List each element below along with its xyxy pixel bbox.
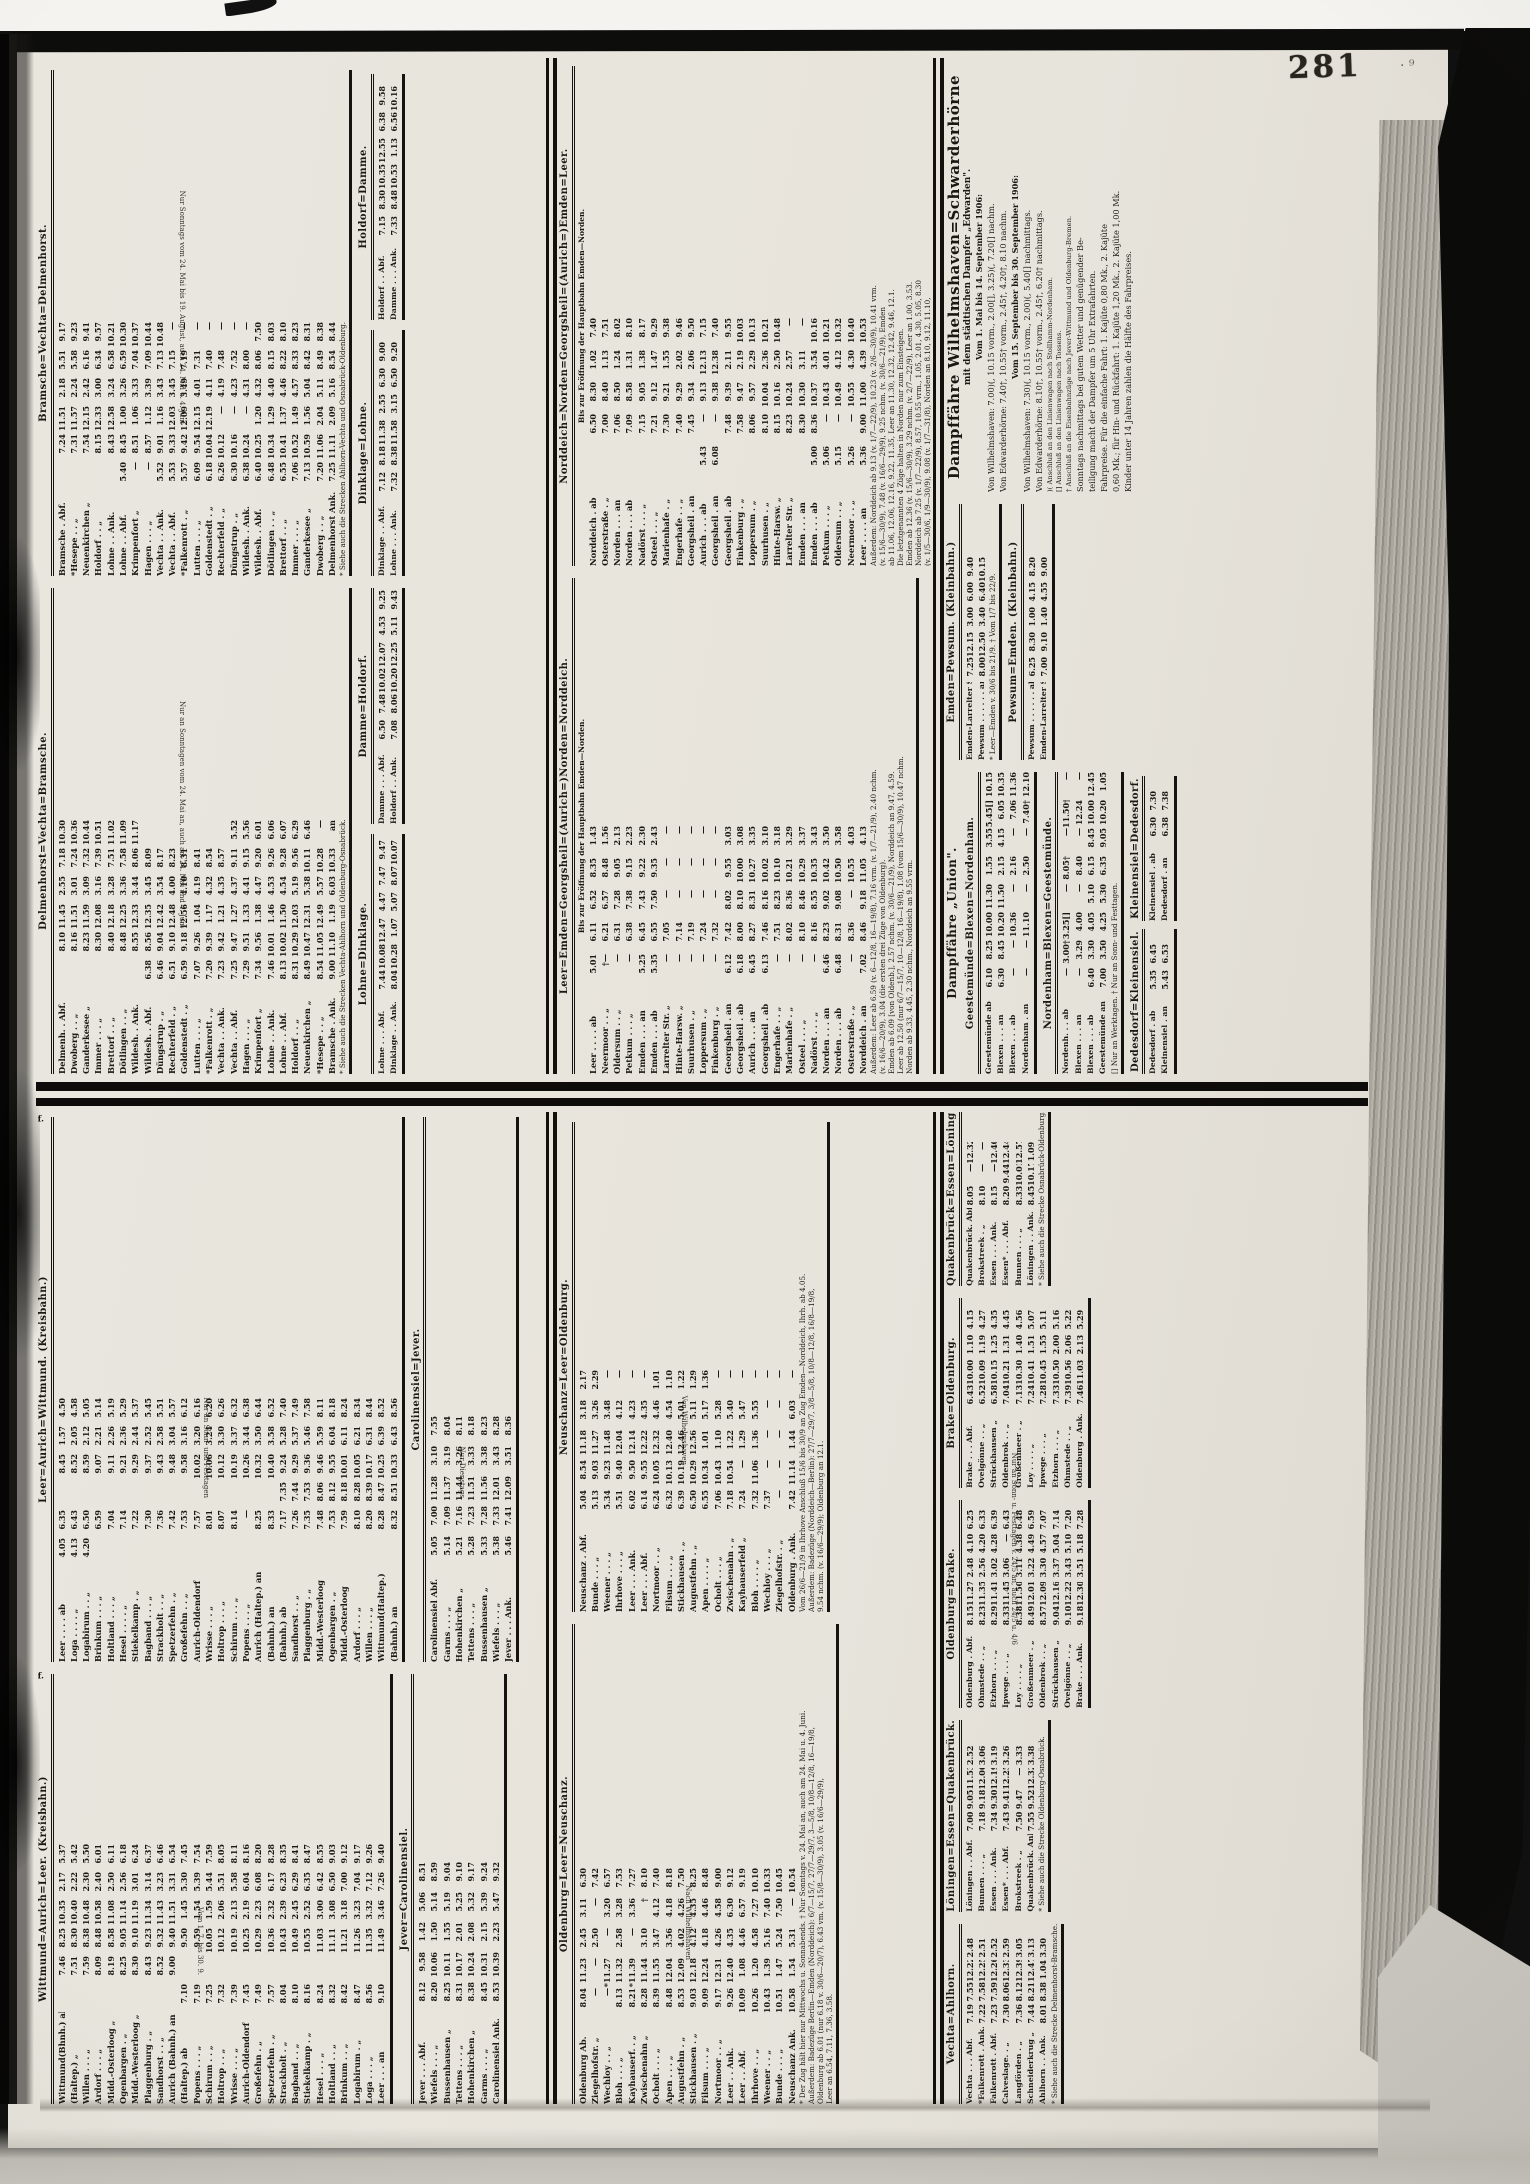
time-cell: 6.05 — [995, 800, 1007, 828]
time-cell: 10.01 — [1013, 1164, 1025, 1186]
table-row: Marienhafe . „—8.028.3610.213.29 — [783, 578, 795, 1074]
station-name: Ziegelhofstr. „ — [589, 2018, 601, 2104]
table-row: Wiefels . . . „8.2010.061.505.148.59 — [428, 1674, 440, 2104]
time-cell — [215, 1482, 227, 1510]
station-name: Aurich-Oldendorf — [240, 2012, 252, 2104]
time-cell: 10.43 — [761, 1988, 773, 2018]
table-rotated-note: Von Wilhelmshaven — [680, 1396, 688, 1465]
time-cell — [338, 1538, 350, 1566]
time-cell: — — [761, 1400, 773, 1430]
time-cell: — — [1020, 940, 1032, 968]
time-cell: 3.02 — [988, 1558, 1000, 1582]
timetable-kleinensiel-dedesdorf: Kleinensiel=Dedesdorf.Kleinensiel . ab6.… — [1130, 776, 1177, 921]
time-cell: 3.04 — [166, 1426, 178, 1454]
time-cell: 8.48 — [663, 1988, 675, 2018]
time-cell: 7.26 — [375, 1872, 387, 1900]
time-cell: 6.45 — [636, 922, 648, 954]
table-body: Delmenh. . Abf.8.1011.452.557.1810.30Dwo… — [56, 588, 339, 1074]
time-cell: 8.03 — [265, 322, 277, 350]
time-cell: 10.30 — [117, 322, 129, 350]
station-name: Loppersum . „ — [746, 478, 758, 566]
time-cell: 9.10 — [375, 1984, 387, 2012]
time-cell: 11.32 — [613, 1958, 625, 1988]
time-cell: 10.36 — [1007, 912, 1019, 940]
timetable-norddeich-emden-leer: Norddeich=Norden=Georgsheil=(Aurich=)Emd… — [559, 66, 931, 566]
time-cell: 8.38 — [314, 322, 326, 350]
station-name: Geestemünde an — [1097, 996, 1109, 1074]
time-cell: 8.56 — [388, 1398, 400, 1426]
time-cell: 9.50 — [626, 1460, 638, 1490]
table-footnote: * Siehe auch die Strecken Vechta-Ahlhorn… — [338, 588, 347, 1074]
time-cell: 3.29 — [783, 826, 795, 858]
station-name: Aurich (Bahnh.) an — [166, 2012, 178, 2104]
table-row: Aurich . . . ab5.43—9.1312.137.15 — [697, 66, 709, 566]
station-name: Osterstraße . „ — [845, 986, 857, 1074]
time-cell — [326, 1956, 338, 1984]
time-cell: 12.15 — [191, 406, 203, 434]
table-row: Norden . . . an6.468.239.0210.423.50 — [820, 578, 832, 1074]
time-cell: — — [736, 1370, 748, 1400]
time-cell: 11.18 — [577, 1430, 589, 1460]
table-rotated-note: Nur an Sonn- und Festtagen — [202, 1398, 210, 1499]
time-cell: 10.00 — [1085, 800, 1097, 828]
time-cell: 8.10 — [56, 932, 68, 960]
station-name: Strückhausen „ — [988, 1410, 1000, 1488]
time-cell: 4.20 — [80, 1538, 92, 1566]
time-cell: 5.40 — [117, 462, 129, 490]
time-cell: 1.55 — [660, 350, 672, 382]
time-cell: 10.43 — [820, 382, 832, 414]
station-name: Marienhafe . „ — [783, 986, 795, 1074]
time-cell: 3.38 — [1025, 1746, 1037, 1768]
time-cell: 3.10 — [428, 1446, 440, 1476]
table-row: Popens . . . „7.199.591.545.397.54 — [191, 1674, 203, 2104]
table-row: Schirum . . „7.2510.051.595.447.59 — [203, 1674, 215, 2104]
time-cell: 4.35 — [215, 876, 227, 904]
station-name: Hagen . . . „ — [142, 490, 154, 576]
time-cell: 8.10 — [638, 1868, 650, 1898]
station-name: Immer . . . „ — [92, 988, 104, 1074]
table-side-note: In Popens halten die Züge nur nach Bedar… — [38, 1672, 44, 1682]
time-cell: 12.09 — [675, 1958, 687, 1988]
time-cell — [228, 1482, 240, 1510]
table-row: Neuenkirchen „8.4910.4712.315.3810.116.4… — [301, 588, 313, 1074]
time-cell: 11.49 — [375, 1928, 387, 1956]
time-cell: 8.23 — [80, 932, 92, 960]
station-name: Schneiderkrug „ — [1025, 2026, 1037, 2104]
time-cell: 3.47 — [650, 1928, 662, 1958]
time-cell: 8.17 — [636, 318, 648, 350]
table-row: Lohne . . Ank.8.4312.583.246.5810.21 — [105, 70, 117, 576]
time-cell — [363, 1538, 375, 1566]
time-cell: 9.40 — [375, 1844, 387, 1872]
time-cell: 6.26 — [215, 1398, 227, 1426]
time-cell: 1.40 — [1013, 1335, 1025, 1360]
station-name: Midd.-Osterloog „ — [105, 2012, 117, 2104]
time-cell: 4.10 — [964, 1534, 976, 1558]
time-cell: 10.42 — [820, 858, 832, 890]
time-cell: 7.06 — [289, 462, 301, 490]
time-cell: 4.05 — [56, 1538, 68, 1566]
time-cell: 2.48 — [964, 1938, 976, 1960]
time-cell: 5.52 — [228, 820, 240, 848]
time-cell: 5.35 — [1147, 970, 1159, 996]
time-cell: 5.01 — [587, 954, 599, 986]
time-cell: 8.24 — [314, 1984, 326, 2012]
time-cell: 8.51 — [388, 1482, 400, 1510]
time-cell: 9.36 — [301, 1454, 313, 1482]
time-cell: 12.48 — [166, 904, 178, 932]
time-cell: — — [228, 406, 240, 434]
time-cell: 5.04 — [577, 1490, 589, 1520]
time-cell: 2.56 — [976, 1558, 988, 1582]
time-cell: 5.35 — [648, 954, 660, 986]
time-cell: 8.18 — [465, 1416, 477, 1446]
time-cell: 9.46 — [673, 318, 685, 350]
time-cell: 3.28 — [105, 876, 117, 904]
table-row: Nordenham . an——11.10—2.50—7.40†12.10 — [1020, 772, 1032, 1074]
time-cell: 1.55 — [441, 1922, 453, 1952]
time-cell: 8.04 — [388, 970, 400, 996]
time-cell: 10.49 — [832, 382, 844, 414]
time-cell: 7.39 — [228, 1984, 240, 2012]
time-cell: 4.19 — [191, 876, 203, 904]
time-cell: 9.40 — [613, 1460, 625, 1490]
time-cell: 2.23 — [490, 1922, 502, 1952]
table-body: Leer . . . . ab4.056.358.451.574.50Loga … — [56, 1117, 400, 1662]
time-cell: — — [626, 1370, 638, 1400]
timetable-oldenburg-leer-neuschanz: Oldenburg=Leer=Neuschanz.Oldenburg Ab.8.… — [559, 1624, 839, 2104]
time-cell: 8.23 — [166, 848, 178, 876]
time-cell: 11.14 — [117, 1900, 129, 1928]
table-row: Strückhausen „6.5810.151.254.35 — [988, 1298, 1000, 1488]
time-cell: 1.21 — [215, 904, 227, 932]
time-cell: 8.28 — [351, 1482, 363, 1510]
time-cell: 8.52 — [154, 1956, 166, 1984]
time-cell — [375, 1956, 387, 1984]
time-cell: 8.54 — [577, 1460, 589, 1490]
station-name: Norden . . . ab — [623, 478, 635, 566]
time-cell: 5.37 — [129, 1398, 141, 1426]
table-row: Brokstreek . „8.10—— — [976, 1112, 988, 1286]
time-cell: 3.00 — [964, 607, 976, 632]
station-name: Oldersum . . „ — [832, 478, 844, 566]
table-row: Holtrop . . „7.3210.122.065.518.05 — [215, 1674, 227, 2104]
station-name: *Falkenrott . „ — [178, 490, 190, 576]
time-cell: 6.52 — [976, 1385, 988, 1410]
steamer-legend: [] Anschluß an den Linienwagen nach Toss… — [1055, 62, 1065, 492]
time-cell: 1.36 — [749, 1430, 761, 1460]
time-cell: 11.36 — [1007, 772, 1019, 800]
time-cell: 11.26 — [351, 1928, 363, 1956]
station-name: Oldenbrok . . „ — [1037, 1630, 1049, 1708]
time-cell: 3.35 — [746, 826, 758, 858]
time-cell: 7.09 — [142, 350, 154, 378]
time-cell: 10.48 — [771, 318, 783, 350]
time-cell: 6.18 — [734, 954, 746, 986]
station-name: Suurhusen . „ — [759, 478, 771, 566]
time-cell: 7.28 — [478, 1506, 490, 1536]
time-cell: 8.51 — [416, 1862, 428, 1892]
time-cell: 3.11 — [796, 350, 808, 382]
time-cell: 10.32 — [832, 318, 844, 350]
time-cell: 4.58 — [749, 1928, 761, 1958]
time-cell: 5.37 — [289, 1426, 301, 1454]
time-cell: 5.22 — [1062, 1310, 1074, 1335]
station-name: Brinkum . . „ — [338, 2012, 350, 2104]
time-cell: 7.32 — [709, 922, 721, 954]
timetable-oldenburg-brake: Oldenburg=Brake.Oldenburg . Abf.8.1511.2… — [946, 1500, 1091, 1708]
time-cell: 3.19 — [988, 1746, 1000, 1768]
table-row: Immer . . . „8.3012.083.167.3910.51 — [92, 588, 104, 1074]
time-cell — [68, 1984, 80, 2012]
station-name: Wrisse . . . „ — [203, 1566, 215, 1662]
time-cell: 7.12 — [376, 472, 388, 498]
station-name: Löningen . . Abf. — [964, 1834, 976, 1912]
table-row: Leer . . . . an5.369.0011.004.3910.53 — [857, 66, 869, 566]
time-cell: 10.35 — [808, 858, 820, 890]
time-cell: 1.02 — [587, 350, 599, 382]
time-cell — [636, 446, 648, 478]
time-cell: — — [685, 826, 697, 858]
time-cell: 5.30 — [178, 1872, 190, 1900]
time-cell: 12.15 — [964, 632, 976, 657]
time-cell — [142, 1984, 154, 2012]
table-title: Lohne=Dinklage. — [358, 834, 374, 1074]
time-cell: 5.51 — [613, 1490, 625, 1520]
time-cell: 9.39 — [722, 382, 734, 414]
time-cell: 11.11 — [326, 1928, 338, 1956]
time-cell: 6.30 — [724, 1898, 736, 1928]
time-cell: 8.33 — [289, 350, 301, 378]
time-cell: 1.12 — [142, 406, 154, 434]
time-cell: 12.35 — [142, 904, 154, 932]
time-cell: 4.37 — [228, 876, 240, 904]
time-cell: 9.43 — [388, 590, 400, 616]
time-cell: 6.39 — [375, 1426, 387, 1454]
time-cell: 3.05 — [1013, 1938, 1025, 1960]
station-name: Delmenh. . Abf. — [56, 988, 68, 1074]
time-cell: 1.59 — [203, 1900, 215, 1928]
time-cell — [783, 446, 795, 478]
time-cell: 10.17 — [1025, 1164, 1037, 1186]
time-cell: 1.01 — [650, 1370, 662, 1400]
station-name: Spetzerfehn . „ — [166, 1566, 178, 1662]
band-neuschanz: Oldenburg=Leer=Neuschanz.Oldenburg Ab.8.… — [559, 1112, 931, 2104]
time-cell: 8.45 — [117, 434, 129, 462]
table-row: Emden-Larrelter Straße ab7.2512.153.006.… — [964, 504, 976, 760]
time-cell: 8.58 — [105, 1928, 117, 1956]
time-cell: 5.06 — [416, 1892, 428, 1922]
time-cell: 7.28 — [1074, 1510, 1086, 1534]
time-cell: 5.57 — [166, 1398, 178, 1426]
time-cell — [105, 1984, 117, 2012]
time-cell: 12.19 — [203, 406, 215, 434]
time-cell: 8.54 — [203, 848, 215, 876]
time-cell: 12.49 — [314, 904, 326, 932]
time-cell: 7.46 — [759, 922, 771, 954]
time-cell: 12.32 — [964, 1142, 976, 1164]
station-name: Georgsheil . an — [722, 986, 734, 1074]
time-cell: 7.07 — [191, 960, 203, 988]
station-name: Lohne . . Abf. — [117, 490, 129, 576]
station-name: Loga . . . „ — [363, 2012, 375, 2104]
time-cell: 5.28 — [277, 1426, 289, 1454]
time-cell: 11.17 — [129, 820, 141, 848]
time-cell: 5.51 — [154, 1398, 166, 1426]
time-cell: 7.52 — [228, 350, 240, 378]
steamer-heading: Dampffähre Wilhelmshaven=Schwarderhörne — [946, 62, 963, 492]
table-row: Larrelter Str. „8.2310.242.57— — [783, 66, 795, 566]
time-cell: 12.31 — [301, 904, 313, 932]
time-cell: 7.04 — [351, 1872, 363, 1900]
time-cell: 7.58 — [117, 848, 129, 876]
section-rule — [546, 58, 557, 1074]
time-cell — [56, 960, 68, 988]
table-row: Goldenstedt . „6.1810.0412.194.117.40— — [203, 70, 215, 576]
time-cell: 8.33 — [1013, 1186, 1025, 1208]
table-row: Bussenhausen „8.2510.111.555.199.04 — [441, 1674, 453, 2104]
table-footnote: ab 11.06, 12.06, 12.16, 9.22, 11.35, Lee… — [887, 66, 896, 566]
time-cell: 6.04 — [326, 1426, 338, 1454]
time-cell: 2.39 — [277, 1900, 289, 1928]
time-cell: 12.33 — [92, 406, 104, 434]
table-row: Bunde . . . „5.139.0311.273.262.29 — [589, 1122, 601, 1612]
time-cell: 1.42 — [416, 1922, 428, 1952]
station-name: Rechterfeld . „ — [215, 490, 227, 576]
station-name: Emden . . . ab — [648, 986, 660, 1074]
table-row: Marienhafe . „7.309.211.559.38 — [660, 66, 672, 566]
time-cell: 7.19 — [964, 2004, 976, 2026]
time-cell: 8.59 — [428, 1862, 440, 1892]
time-cell: — — [1060, 884, 1072, 912]
table-row: Lutten . . . „7.079.261.044.198.41 — [191, 588, 203, 1074]
time-cell: 8.02 — [783, 922, 795, 954]
time-cell: 3.01 — [68, 876, 80, 904]
time-cell: 4.50 — [56, 1398, 68, 1426]
time-cell: 3.00† — [1060, 940, 1072, 968]
time-cell: 10.31 — [478, 1952, 490, 1982]
station-name: Georgsheil . ab — [734, 986, 746, 1074]
time-cell: 5.44 — [203, 1872, 215, 1900]
time-cell: 8.39 — [650, 1988, 662, 2018]
time-cell: 8.25 — [441, 1982, 453, 2012]
time-cell — [80, 1482, 92, 1510]
time-cell — [277, 1956, 289, 1984]
time-cell: 5.16 — [1050, 1310, 1062, 1335]
time-cell: 11.43 — [154, 1900, 166, 1928]
table-row: Ogenbargen . „7.538.129.556.048.18 — [326, 1117, 338, 1662]
time-cell: 7.20 — [203, 960, 215, 988]
time-cell: 3.43 — [1062, 1558, 1074, 1582]
time-cell: 8.04 — [577, 1988, 589, 2018]
time-cell: 9.00 — [712, 1868, 724, 1898]
time-cell: 6.29 — [289, 820, 301, 848]
table-row: Aurich (Haltep.) an8.2510.323.506.44 — [252, 1117, 264, 1662]
time-cell: 7.22 — [976, 2004, 988, 2026]
time-cell: 11.28 — [428, 1476, 440, 1506]
time-cell: 9.07 — [92, 1454, 104, 1482]
time-cell: 6.17 — [265, 1872, 277, 1900]
time-cell: 9.03 — [687, 1988, 699, 2018]
time-cell: — — [685, 954, 697, 986]
table-row: Blexen . . . ab——10.36—2.16—7.0611.36 — [1007, 772, 1019, 1074]
time-cell: 7.40 — [587, 318, 599, 350]
table-row: Plaggenburg . „7.357.539.365.467.58 — [301, 1117, 313, 1662]
time-cell: 6.16 — [80, 350, 92, 378]
time-cell: 2.13 — [1074, 1335, 1086, 1360]
time-cell: 11.55 — [650, 1958, 662, 1988]
time-cell — [599, 446, 611, 478]
time-cell: 1.29 — [736, 1430, 748, 1460]
time-cell: — — [709, 826, 721, 858]
table-row: Kleinensiel . an5.436.53 — [1159, 929, 1171, 1074]
time-cell: 8.57 — [1037, 1606, 1049, 1630]
table-footnote: Leer an 6.54, 7.11, 7.36, 3.58. — [825, 1624, 834, 2104]
station-name: Strückhausen „ — [1050, 1630, 1062, 1708]
time-cell: 8.47 — [301, 1844, 313, 1872]
time-cell: 8.18 — [338, 1482, 350, 1510]
time-cell — [117, 1538, 129, 1566]
station-name: Midd.-Osterloog — [338, 1566, 350, 1662]
time-cell: 6.01 — [92, 1844, 104, 1872]
time-cell: 8.05 — [215, 1844, 227, 1872]
time-cell: — — [1060, 828, 1072, 856]
time-cell: 6.57 — [736, 1898, 748, 1928]
time-cell: 9.29 — [129, 1454, 141, 1482]
station-name: Ahlhorn . . Ank. — [1037, 2026, 1049, 2104]
station-name: Finkenburg . „ — [734, 478, 746, 566]
time-cell: 8.20 — [363, 1510, 375, 1538]
time-cell: 9.35 — [648, 858, 660, 890]
time-cell: 6.59 — [178, 960, 190, 988]
station-name: Loga . . . . „ — [68, 1566, 80, 1662]
time-cell: 12.18 — [105, 904, 117, 932]
time-cell: 6.50 — [388, 368, 400, 394]
table-row: Brokstreek . „7.509.47—3.33 — [1013, 1720, 1025, 1912]
station-name: Bramsche . Ank. — [326, 988, 338, 1074]
table-row: Bramsche . Ank.9.0011.101.196.0310.33an — [326, 588, 338, 1074]
time-cell: 11.27 — [964, 1582, 976, 1606]
time-cell: 7.16 — [453, 1506, 465, 1536]
steamer-section: Dampffähre Wilhelmshaven=Schwarderhörne … — [946, 62, 1135, 492]
time-cell: 3.23 — [154, 1872, 166, 1900]
time-cell: — — [638, 1370, 650, 1400]
time-cell: 3.18 — [338, 1900, 350, 1928]
time-cell — [68, 960, 80, 988]
time-cell: 9.43 — [154, 1454, 166, 1482]
table-title: Norddeich=Norden=Georgsheil=(Aurich=)Emd… — [559, 66, 575, 566]
time-cell: 7.51 — [599, 318, 611, 350]
time-cell: 8.21 — [1025, 1982, 1037, 2004]
time-cell: 5.10 — [1085, 884, 1097, 912]
time-cell: 7.38 — [1159, 791, 1171, 817]
time-cell: 3.31 — [166, 1872, 178, 1900]
time-cell: 7.32 — [215, 1984, 227, 2012]
time-cell: — — [736, 1460, 748, 1490]
time-cell: 3.28 — [613, 1898, 625, 1928]
time-cell: 8.00 — [734, 922, 746, 954]
time-cell: 8.23 — [783, 414, 795, 446]
station-name: Brake . . . Ank. — [1074, 1630, 1086, 1708]
time-cell: 3.37 — [796, 826, 808, 858]
station-name: Engerhafe . . „ — [673, 478, 685, 566]
table-body: Wittmund(Bhnh.) ab7.468.2510.352.175.37(… — [56, 1674, 388, 2104]
station-name: Sandhorst . . „ — [154, 2012, 166, 2104]
table-row: *Hesepe . . „8.5411.0512.495.5710.28— — [314, 588, 326, 1074]
time-cell: 11.57 — [68, 406, 80, 434]
time-cell: 10.01 — [265, 932, 277, 960]
